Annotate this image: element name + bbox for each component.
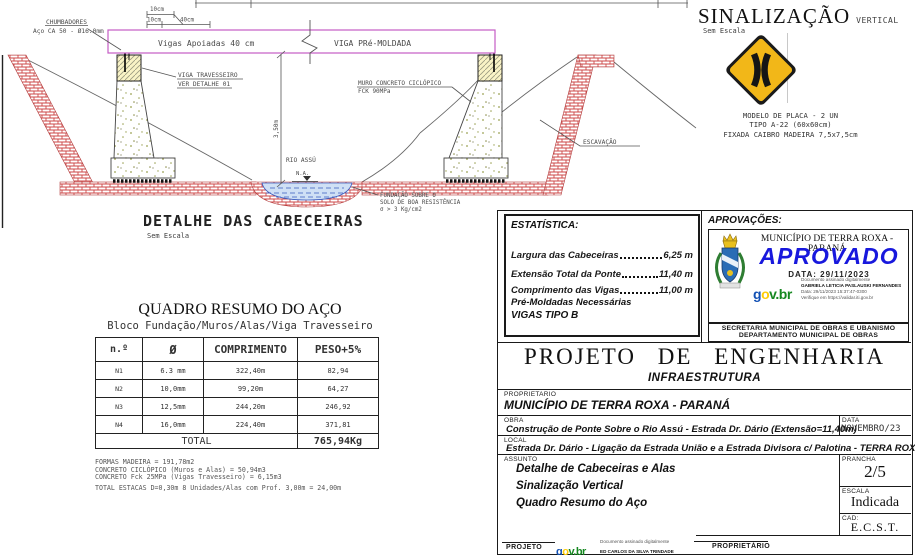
- water-level-marker: [303, 176, 311, 181]
- table-row: N3 12,5mm 244,20m 246,92: [96, 398, 379, 416]
- table-row: N4 16,0mm 224,40m 371,81: [96, 416, 379, 434]
- chumbadores-label: CHUMBADORES: [46, 19, 87, 26]
- stat-extra-2: VIGAS TIPO B: [511, 310, 578, 321]
- govbr-g: g: [753, 286, 761, 302]
- govbr-v: v.br: [769, 286, 792, 302]
- slope-right-top: [578, 55, 614, 67]
- cell-diam: 6.3 mm: [143, 362, 204, 380]
- govbr-o: o: [761, 286, 769, 302]
- table-total-row: TOTAL 765,94Kg: [96, 434, 379, 449]
- panel-hline: [498, 389, 911, 390]
- top-dimension-line: [195, 0, 688, 8]
- secretaria-line-1: SECRETARIA MUNICIPAL DE OBRAS E UBANISMO: [709, 325, 908, 332]
- muro-label: MURO CONCRETO CICLÓPICO: [358, 80, 441, 87]
- data-value: NOVEMBRO/23: [841, 424, 901, 434]
- dotted-leader: [620, 292, 657, 294]
- project-subtitle: INFRAESTRUTURA: [498, 372, 911, 384]
- cell-diam: 12,5mm: [143, 398, 204, 416]
- escavacao-label: ESCAVAÇÃO: [583, 137, 617, 146]
- cell-comp: 322,40m: [204, 362, 298, 380]
- sign-title-suffix: VERTICAL: [856, 16, 899, 25]
- stat-label: Extensão Total da Ponte: [511, 269, 621, 280]
- govbr-logo-small: gov.br: [556, 546, 586, 555]
- govbr-logo: gov.br: [753, 286, 792, 302]
- height-dimension-label: 3,50m: [273, 120, 280, 138]
- proprietario-value: MUNICÍPIO DE TERRA ROXA - PARANÁ: [504, 398, 730, 412]
- cell-num: N4: [96, 416, 143, 434]
- obra-label: OBRA: [504, 417, 524, 424]
- municipal-coat-of-arms: [713, 233, 747, 291]
- assunto-line-3: Quadro Resumo do Aço: [516, 497, 647, 509]
- sign-section-title: SINALIZAÇÃOVERTICAL: [698, 4, 899, 29]
- steel-table-subtitle: Bloco Fundação/Muros/Alas/Viga Travessei…: [85, 320, 395, 332]
- drawing-scale-note: Sem Escala: [147, 232, 189, 240]
- cell-num: N2: [96, 380, 143, 398]
- bridge-symbol-right: [765, 54, 769, 86]
- col-header-comp: COMPRIMENTO: [204, 338, 298, 362]
- drawing-title: DETALHE DAS CABECEIRAS: [143, 212, 364, 230]
- steel-summary-table: n.º Ø COMPRIMENTO PESO+5% N1 6.3 mm 322,…: [95, 337, 379, 449]
- terrain-curve-far-right: [614, 62, 696, 128]
- sign-note-3: FIXADA CAIBRO MADEIRA 7,5x7,5cm: [688, 130, 893, 139]
- sign-face: [728, 37, 793, 102]
- projeto-sig-line-2: ED CARLOS DA SILVA TRINDADE: [600, 549, 674, 555]
- muro-label-2: FCK 90MPa: [358, 88, 391, 95]
- material-note-4: TOTAL ESTACAS D=0,30m 8 Unidades/Alas co…: [95, 485, 341, 493]
- table-row: N2 10,0mm 99,20m 64,27: [96, 380, 379, 398]
- abutment-wall-left: [114, 81, 154, 158]
- sign-notes: MODELO DE PLACA - 2 UN TIPO A-22 (60x60c…: [688, 111, 893, 139]
- sig-line-4: Verifique em https://validar.iti.gov.br: [801, 295, 907, 301]
- drawing-sheet: Vigas Apoiadas 40 cm VIGA PRé-MOLDADA 10…: [0, 0, 915, 555]
- stat-row-largura: Largura das Cabeceiras 6,25 m: [511, 250, 693, 261]
- stamp-aprovado: APROVADO: [749, 243, 909, 270]
- dim-10cm-top: 10cm: [150, 7, 164, 13]
- sign-note-2: TIPO A-22 (60x60cm): [688, 120, 893, 129]
- cell-peso: 246,92: [298, 398, 379, 416]
- stat-label: Largura das Cabeceiras: [511, 250, 619, 261]
- viga-travesseiro-label-2: VER DETALHE 01: [178, 81, 230, 88]
- obra-value: Construção de Ponte Sobre o Rio Assú - E…: [506, 424, 857, 435]
- cell-comp: 244,20m: [204, 398, 298, 416]
- govbr-v: v.br: [568, 546, 585, 555]
- cell-peso: 64,27: [298, 380, 379, 398]
- dotted-leader: [622, 276, 658, 278]
- col-header-num: n.º: [96, 338, 143, 362]
- river-label: RIO ASSÚ: [286, 155, 316, 164]
- cell-comp: 99,20m: [204, 380, 298, 398]
- title-block-panel: ESTATÍSTICA: Largura das Cabeceiras 6,25…: [497, 210, 913, 555]
- abutment-wall-right: [449, 81, 502, 158]
- approval-stamp-box: MUNICÍPIO DE TERRA ROXA - PARANÁ APROVAD…: [708, 229, 909, 323]
- stat-value: 6,25 m: [663, 250, 693, 261]
- cell-num: N3: [96, 398, 143, 416]
- sign-note-1: MODELO DE PLACA - 2 UN: [688, 111, 893, 120]
- cad-value: E.C.S.T.: [839, 520, 911, 535]
- estatistica-title: ESTATÍSTICA:: [511, 220, 578, 231]
- footing-right: [444, 158, 508, 178]
- signature-block: Documento assinado digitalmente GABRIELA…: [801, 277, 907, 301]
- secretaria-line-2: DEPARTAMENTO MUNICIPAL DE OBRAS: [709, 332, 908, 339]
- estatistica-box: ESTATÍSTICA: Largura das Cabeceiras 6,25…: [504, 214, 700, 337]
- cell-diam: 10,0mm: [143, 380, 204, 398]
- narrow-bridge-sign: [723, 35, 799, 107]
- escala-label: ESCALA: [842, 488, 869, 495]
- sign-title-main: SINALIZAÇÃO: [698, 4, 850, 28]
- panel-hline: [696, 535, 911, 536]
- bridge-symbol-left: [754, 54, 758, 86]
- chumbadores-label-2: Aço CA 50 - Ø16.0mm: [33, 27, 104, 35]
- project-main-title: PROJETO DE ENGENHARIA: [498, 344, 911, 370]
- slope-right: [543, 55, 596, 195]
- material-note-3: CONCRETO Fck 25MPa (Vigas Travesseiro) =…: [95, 474, 341, 482]
- viga-travesseiro-label: VIGA TRAVESSEIRO: [178, 72, 238, 79]
- assunto-line-2: Sinalização Vertical: [516, 480, 623, 492]
- secretaria-box: SECRETARIA MUNICIPAL DE OBRAS E UBANISMO…: [708, 323, 909, 342]
- terrain-curve-basin: [362, 133, 420, 182]
- stat-value: 11,40 m: [659, 269, 693, 280]
- ground-left: [60, 182, 256, 195]
- cell-peso: 371,81: [298, 416, 379, 434]
- aprovacoes-title: APROVAÇÕES:: [708, 215, 782, 226]
- escala-value: Indicada: [839, 495, 911, 511]
- panel-hline: [498, 435, 911, 436]
- height-dimension-line: [277, 51, 285, 187]
- cell-num: N1: [96, 362, 143, 380]
- dim-40cm: 40cm: [180, 18, 194, 24]
- assunto-label: ASSUNTO: [504, 456, 537, 463]
- projeto-label: PROJETO: [506, 544, 542, 551]
- col-header-diam: Ø: [143, 338, 204, 362]
- table-row: N1 6.3 mm 322,40m 82,94: [96, 362, 379, 380]
- stat-row-comprimento: Comprimento das Vigas 11,00 m: [511, 285, 693, 296]
- foundation-note-1: FUNDAÇÃO SOBRE O: [380, 192, 436, 199]
- data-label: DATA: [842, 417, 860, 424]
- stat-extra-1: Pré-Moldadas Necessárias: [511, 297, 631, 308]
- foundation-note-2: SOLO DE BOA RESISTÊNCIA: [380, 198, 461, 206]
- steel-table-title: QUADRO RESUMO DO AÇO: [95, 301, 385, 319]
- material-notes: FORMAS MADEIRA = 191,78m2 CONCRETO CICLÓ…: [95, 459, 341, 492]
- dotted-leader: [620, 257, 663, 259]
- sign-scale-note: Sem Escala: [703, 27, 745, 35]
- slope-left: [8, 55, 93, 183]
- prancha-value: 2/5: [839, 462, 911, 482]
- total-label: TOTAL: [96, 434, 298, 449]
- stat-row-extensao: Extensão Total da Ponte 11,40 m: [511, 269, 693, 280]
- cell-diam: 16,0mm: [143, 416, 204, 434]
- cell-peso: 82,94: [298, 362, 379, 380]
- foundation-note-3: σ > 3 Kg/cm2: [380, 207, 422, 213]
- stat-value: 11,00 m: [659, 285, 693, 296]
- beam-label-left: Vigas Apoiadas 40 cm: [158, 39, 255, 48]
- local-value: Estrada Dr. Dário - Ligação da Estrada U…: [506, 443, 915, 454]
- col-header-peso: PESO+5%: [298, 338, 379, 362]
- dim-10cm: 10cm: [147, 18, 161, 24]
- assunto-line-1: Detalhe de Cabeceiras e Alas: [516, 463, 675, 475]
- projeto-sig-line-1: Documento assinado digitalmente: [600, 539, 669, 545]
- proprietario2-label: PROPRIETÁRIO: [712, 543, 770, 550]
- beam-label-right: VIGA PRé-MOLDADA: [334, 38, 411, 48]
- cell-comp: 224,40m: [204, 416, 298, 434]
- stat-label: Comprimento das Vigas: [511, 285, 619, 296]
- footing-left: [111, 158, 175, 178]
- panel-divider: [701, 211, 702, 342]
- proprietario-label: PROPRIETARIO: [504, 391, 556, 398]
- total-value: 765,94Kg: [298, 434, 379, 449]
